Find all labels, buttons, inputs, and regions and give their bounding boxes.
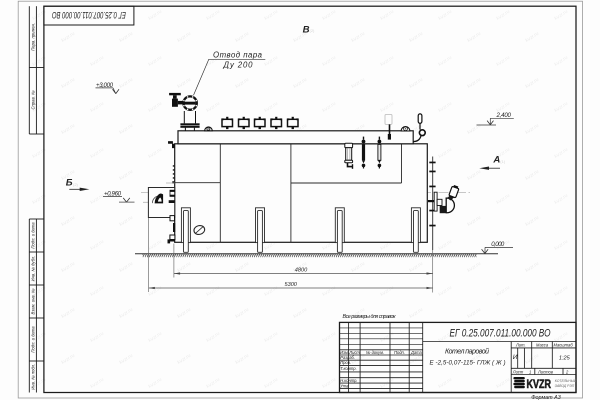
svg-text:(2): (2) [73,182,79,187]
svg-text:№ докум.: № докум. [366,350,384,355]
svg-text:Справ. №: Справ. № [31,90,36,109]
svg-text:Пров.: Пров. [340,360,351,365]
svg-text:КОТЕЛЬНЫЙ: КОТЕЛЬНЫЙ [555,379,577,383]
svg-text:Перв. примен.: Перв. примен. [31,23,36,51]
svg-text:Взам. инв. №: Взам. инв. № [31,288,36,314]
svg-text:Все размеры для справок: Все размеры для справок [343,314,396,320]
svg-text:2,400: 2,400 [495,112,511,119]
svg-text:Б: Б [66,177,73,188]
svg-text:Подп. и дата: Подп. и дата [31,326,36,353]
svg-text:Котел паровой: Котел паровой [445,347,489,355]
svg-text:(1): (1) [500,159,506,164]
svg-text:Подп. и дата: Подп. и дата [31,222,36,249]
svg-text:ЗАВОД РЭП: ЗАВОД РЭП [555,384,575,388]
svg-text:Инв. № подл.: Инв. № подл. [31,364,36,390]
svg-text:А: А [492,155,500,166]
svg-text:Формат А3: Формат А3 [531,395,561,400]
svg-text:Н.контр.: Н.контр. [340,378,357,383]
svg-text:Листов: Листов [537,369,554,374]
svg-text:Масштаб: Масштаб [554,343,574,348]
svg-text:KVZR: KVZR [527,379,552,391]
svg-text:Утв.: Утв. [340,383,349,388]
svg-text:ЕГ 0.25.007.011.00.000 ВО: ЕГ 0.25.007.011.00.000 ВО [450,327,551,339]
svg-text:1:25: 1:25 [559,355,571,361]
svg-text:Лист: Лист [512,369,524,374]
svg-text:Отвод пара: Отвод пара [213,51,263,60]
svg-text:Т.контр.: Т.контр. [340,366,357,371]
svg-text:ЕГ 0.25.007.011.00.000 ВО: ЕГ 0.25.007.011.00.000 ВО [52,10,126,20]
svg-text:Лит.: Лит. [515,343,526,348]
svg-text:Дата: Дата [410,350,423,355]
svg-text:Инв. № дубл.: Инв. № дубл. [31,256,36,282]
svg-text:Подп.: Подп. [394,350,405,355]
svg-text:(2): (2) [310,28,316,33]
svg-text:И: И [513,354,518,361]
svg-text:0,000: 0,000 [491,241,505,248]
svg-text:Ду 200: Ду 200 [223,60,254,69]
svg-text:5300: 5300 [284,282,297,288]
svg-text:4800: 4800 [295,267,308,273]
svg-text:Е -2,5-0,07-115- ГЛЖ ( Ж ): Е -2,5-0,07-115- ГЛЖ ( Ж ) [430,359,506,366]
svg-text:Масса: Масса [536,343,549,348]
svg-text:1: 1 [529,369,531,374]
